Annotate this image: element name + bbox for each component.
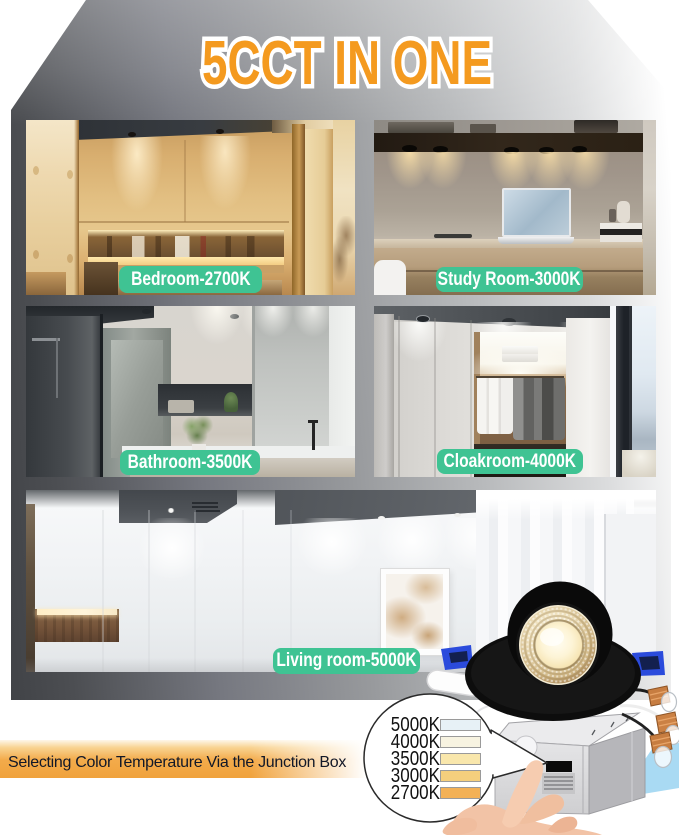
svg-text:5CCT IN ONE: 5CCT IN ONE: [202, 29, 492, 98]
